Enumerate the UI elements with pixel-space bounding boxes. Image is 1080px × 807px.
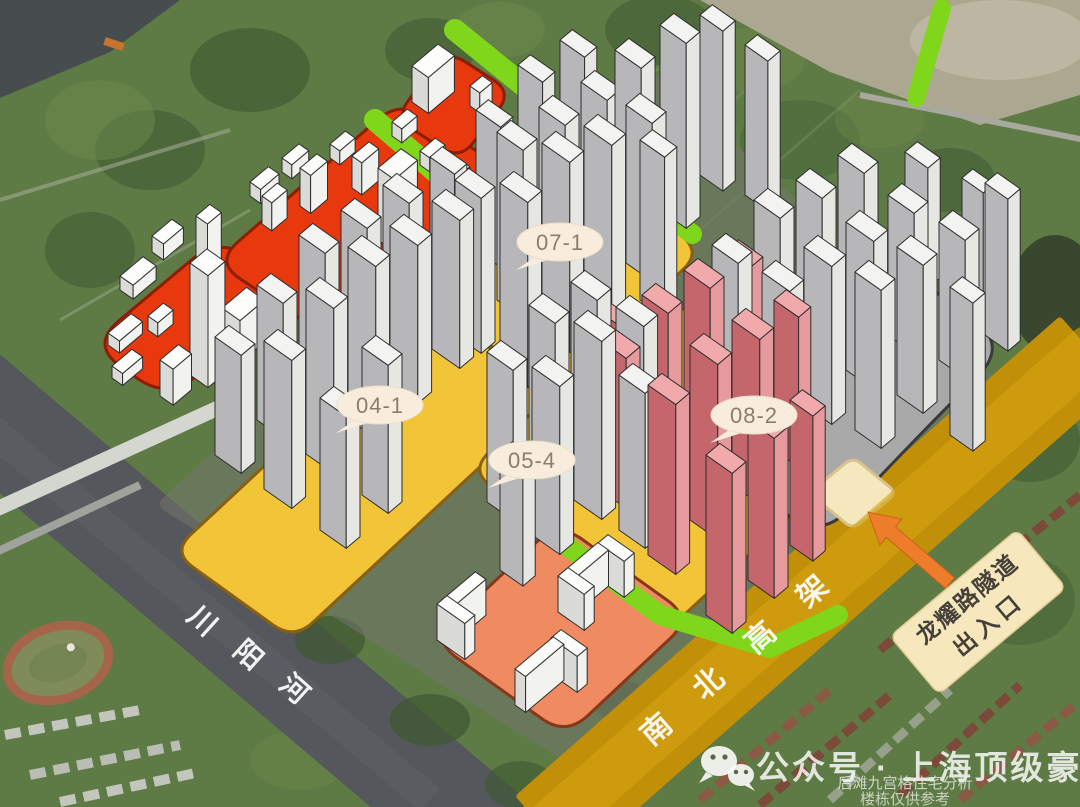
map-decoration: [734, 770, 738, 774]
building-face: [292, 349, 306, 509]
watermark-caption-2: 楼栋仅供参考: [860, 790, 950, 807]
map-decoration: [390, 694, 470, 746]
building-face: [813, 406, 825, 561]
building-face: [241, 344, 255, 474]
map-decoration: [710, 754, 715, 759]
building-face: [881, 279, 895, 449]
building-face: [418, 234, 432, 404]
building-face: [973, 293, 985, 451]
plot-label-text: 04-1: [356, 393, 404, 418]
building-g: [264, 329, 306, 508]
building-face: [985, 183, 1008, 351]
plot-label-text: 05-4: [508, 448, 556, 473]
building-face: [745, 45, 768, 211]
building-face: [648, 385, 676, 575]
building-face: [574, 322, 602, 520]
building-g: [897, 235, 937, 413]
building-face: [481, 187, 495, 354]
watermark-caption-1: 后滩九宫格住宅分析: [837, 775, 972, 792]
building-face: [190, 263, 208, 388]
building-face: [460, 209, 474, 369]
map-decoration: [45, 80, 155, 160]
building-face: [320, 398, 346, 548]
map-decoration: [190, 28, 310, 112]
screenshot-root: 07-104-105-408-2 南北高架川阳河 龙耀路隧道 出入口 公众号 ·…: [0, 0, 1080, 807]
site-plan-map: 07-104-105-408-2 南北高架川阳河 龙耀路隧道 出入口 公众号 ·…: [0, 0, 1080, 807]
building-g: [950, 277, 985, 451]
building-face: [897, 247, 923, 413]
building-p: [648, 373, 690, 574]
building-face: [950, 287, 973, 451]
building-face: [619, 375, 645, 548]
building-g: [432, 189, 474, 368]
building-g: [855, 260, 895, 448]
building-face: [774, 427, 788, 599]
map-decoration: [728, 764, 754, 786]
building-g: [745, 35, 780, 211]
building-p: [706, 443, 746, 633]
building-face: [706, 455, 732, 633]
building-g: [215, 325, 255, 473]
building-face: [790, 400, 813, 561]
building-face: [612, 134, 626, 318]
plot-label-text: 08-2: [730, 403, 778, 428]
building-face: [362, 347, 388, 513]
building-face: [388, 354, 402, 514]
building-face: [1008, 189, 1020, 351]
building-g: [700, 5, 735, 191]
map-decoration: [722, 754, 727, 759]
building-face: [832, 255, 846, 425]
plot-label-text: 07-1: [536, 230, 584, 255]
building-face: [676, 393, 690, 575]
building-face: [748, 420, 774, 598]
building-g: [985, 173, 1020, 351]
building-face: [855, 272, 881, 448]
building-face: [700, 15, 723, 191]
building-face: [732, 462, 746, 634]
map-decoration: [744, 770, 748, 774]
building-p: [748, 408, 788, 598]
building-face: [686, 32, 700, 229]
building-face: [215, 337, 241, 473]
building-face: [264, 341, 292, 509]
building-face: [923, 254, 937, 414]
building-face: [432, 201, 460, 369]
building-face: [723, 21, 735, 191]
building-face: [768, 51, 780, 211]
building-g: [574, 310, 616, 519]
building-face: [602, 330, 616, 520]
